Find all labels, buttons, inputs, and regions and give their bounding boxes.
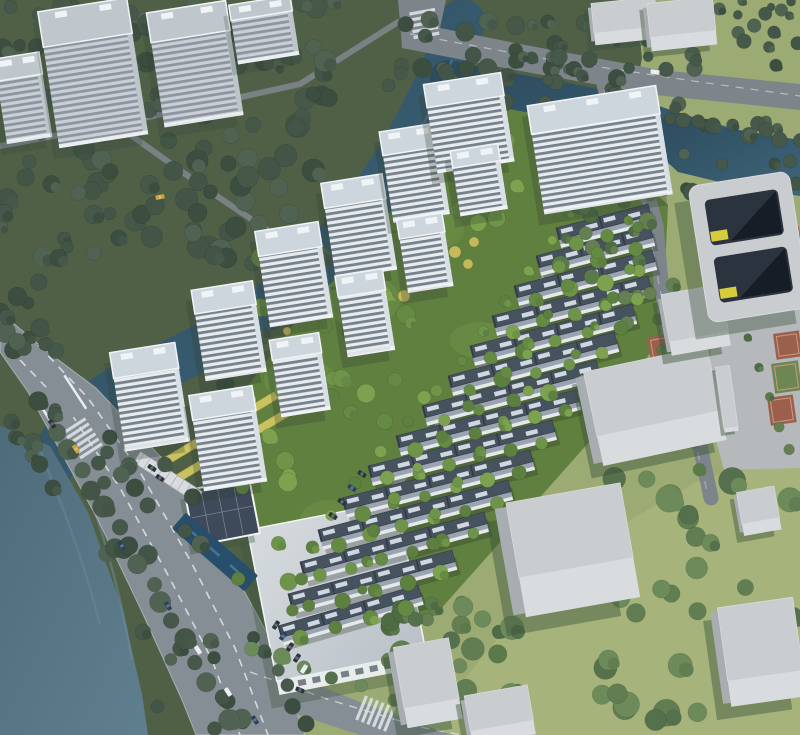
tree [187, 655, 202, 670]
tree [547, 20, 555, 28]
tree [102, 504, 115, 517]
tree [200, 542, 211, 553]
tree [504, 443, 518, 457]
tree [54, 413, 63, 422]
tree [331, 537, 347, 553]
tree [618, 291, 632, 305]
tree [607, 291, 619, 303]
tree [52, 486, 62, 496]
tree [712, 124, 722, 134]
tree [302, 1, 313, 12]
tree [784, 444, 795, 455]
tree [632, 222, 643, 233]
tree [320, 89, 338, 107]
tree [313, 568, 326, 581]
tree [100, 446, 113, 459]
tree [759, 7, 772, 20]
tree [665, 709, 681, 725]
tree [11, 420, 20, 429]
tree [431, 385, 443, 397]
tree [355, 506, 371, 522]
tree [443, 458, 456, 471]
tree [607, 684, 627, 704]
tree [480, 450, 487, 457]
tree [382, 79, 395, 92]
tree [286, 604, 298, 616]
tree [688, 703, 707, 722]
tree [564, 359, 576, 371]
tree [430, 602, 438, 610]
tree [75, 462, 91, 478]
tree [507, 16, 525, 34]
tree [17, 437, 25, 445]
tree [742, 0, 747, 5]
tree [142, 630, 151, 639]
tree [440, 571, 449, 580]
tree [6, 315, 15, 324]
tree [503, 420, 509, 426]
tree [196, 673, 215, 692]
tree [645, 709, 666, 730]
tree [487, 19, 498, 30]
tree [281, 679, 294, 692]
tree [140, 498, 156, 514]
tree [164, 161, 183, 180]
tree [629, 242, 643, 256]
tree [400, 72, 408, 80]
tree [398, 600, 414, 616]
tree [786, 0, 795, 6]
tree [231, 572, 245, 586]
tree [522, 349, 532, 359]
tree [286, 118, 305, 137]
tree [325, 672, 338, 685]
block-roof [393, 638, 459, 709]
tree [419, 491, 430, 502]
tree [480, 472, 495, 487]
tree [513, 399, 521, 407]
tree [737, 34, 752, 49]
block-roof [717, 597, 800, 681]
tree [400, 575, 416, 591]
tree [375, 445, 387, 457]
tree [226, 217, 247, 238]
tree [698, 120, 706, 128]
tree [643, 287, 656, 300]
tree [758, 366, 763, 371]
tree [298, 716, 315, 733]
tree [561, 279, 574, 292]
tree [516, 184, 524, 192]
tree [679, 505, 698, 524]
car-windshield [653, 70, 656, 74]
tree [453, 597, 473, 617]
tree [358, 585, 367, 594]
tree [244, 642, 258, 656]
tree [345, 563, 357, 575]
tree [465, 47, 481, 63]
tree [269, 178, 287, 196]
tree [184, 224, 201, 241]
tree [367, 560, 374, 567]
tree [1, 226, 9, 234]
tree [774, 162, 781, 169]
tree [532, 24, 538, 30]
tree [512, 330, 520, 338]
tree [350, 411, 358, 419]
tree [452, 477, 463, 488]
tree [278, 542, 287, 551]
tree [312, 546, 320, 554]
tree [280, 204, 300, 224]
tree [188, 203, 207, 222]
tree [631, 293, 644, 306]
tree [375, 552, 388, 565]
tree [264, 650, 272, 658]
tree [329, 395, 340, 406]
tree [295, 573, 307, 585]
tree [623, 63, 634, 74]
tree [459, 505, 471, 517]
tree [669, 102, 681, 114]
tree [367, 524, 380, 537]
tree [388, 492, 401, 505]
tree [732, 123, 739, 130]
tree [438, 64, 455, 81]
tree [504, 300, 511, 307]
tree [376, 413, 392, 429]
tree [774, 422, 784, 432]
tree [335, 593, 351, 609]
tree [679, 662, 694, 677]
tree [388, 373, 403, 388]
tree [31, 456, 48, 473]
tree [58, 256, 68, 266]
tree [424, 34, 432, 42]
tree [3, 211, 14, 222]
tree [141, 226, 163, 248]
tree [380, 471, 394, 485]
tree [647, 219, 657, 229]
tree [571, 349, 581, 359]
tree [406, 546, 418, 558]
tree [429, 17, 439, 27]
tree [395, 519, 408, 532]
tree [628, 219, 634, 225]
tree [432, 542, 440, 550]
tree [610, 246, 618, 254]
tree [417, 391, 430, 404]
context-tower [222, 0, 301, 75]
tree [31, 274, 48, 291]
tree [442, 539, 450, 547]
tree [591, 247, 603, 259]
tree [679, 148, 690, 159]
tree [601, 351, 608, 358]
tree [769, 396, 774, 401]
tree [528, 410, 542, 424]
tree [664, 113, 676, 125]
tree [468, 528, 479, 539]
tree [189, 173, 207, 191]
tree [737, 579, 753, 595]
tree [710, 541, 720, 551]
yellow-tree [449, 246, 461, 258]
tree [374, 589, 382, 597]
tree [281, 654, 291, 664]
tree [574, 313, 582, 321]
tree [469, 389, 476, 396]
tree [474, 611, 491, 628]
tree [275, 144, 297, 166]
tree [569, 236, 584, 251]
tree [523, 55, 530, 62]
tree [506, 371, 513, 378]
block-roof [736, 486, 779, 524]
tree [421, 65, 432, 76]
tree [581, 52, 597, 68]
tree [624, 264, 635, 275]
tree [523, 386, 534, 397]
tree [126, 479, 144, 497]
tree [276, 452, 295, 471]
tree [37, 399, 48, 410]
tree [9, 333, 26, 350]
tree [408, 442, 424, 458]
tree [322, 71, 332, 81]
tree [280, 573, 298, 591]
tree [672, 283, 681, 292]
tree [528, 270, 534, 276]
tree [411, 321, 418, 328]
tree [543, 310, 553, 320]
tree [8, 287, 27, 306]
tree [300, 636, 309, 645]
tree [357, 384, 376, 403]
tree [398, 16, 414, 32]
tree [553, 260, 566, 273]
tree [462, 400, 474, 412]
tree [147, 577, 162, 592]
tree [747, 19, 761, 33]
tree [614, 321, 628, 335]
tree [418, 472, 425, 479]
tree [4, 0, 17, 13]
tree [246, 117, 261, 132]
tree [14, 39, 26, 51]
tree [178, 524, 193, 539]
scene-canvas [0, 0, 800, 735]
tree [213, 253, 224, 264]
massing-block [484, 483, 643, 636]
tree [473, 404, 484, 415]
tree [165, 653, 177, 665]
tree [22, 155, 36, 169]
tree [512, 465, 527, 480]
tree [370, 616, 379, 625]
tree [531, 56, 538, 63]
tree [689, 602, 707, 620]
tree [535, 298, 543, 306]
tree [17, 169, 34, 186]
tree [597, 258, 607, 268]
tree [228, 717, 241, 730]
tree [104, 207, 117, 220]
tree [565, 409, 573, 417]
block-roof [647, 0, 716, 37]
tree [536, 437, 548, 449]
tree [582, 74, 589, 81]
tree [238, 149, 258, 169]
tree [638, 471, 655, 488]
residential-tower [520, 86, 674, 226]
tree [690, 55, 702, 67]
tree [719, 7, 727, 15]
tree [48, 424, 66, 442]
tree [86, 246, 101, 261]
yellow-tree [463, 259, 473, 269]
tree [329, 621, 342, 634]
sports-court [771, 360, 800, 393]
tree [113, 466, 129, 482]
tree [530, 367, 541, 378]
tree [775, 64, 782, 71]
tree [38, 337, 52, 351]
tree [716, 158, 728, 170]
tree [333, 1, 341, 9]
tree [192, 159, 206, 173]
tree [652, 580, 670, 598]
tree [456, 22, 475, 41]
tree [302, 599, 314, 611]
tree [759, 122, 774, 137]
tree [771, 132, 787, 148]
tree [733, 10, 742, 19]
tree [413, 463, 422, 472]
tree [457, 356, 467, 366]
tree [607, 657, 619, 669]
tree [789, 15, 794, 20]
tree [699, 468, 707, 476]
tree [306, 87, 321, 102]
tree [548, 236, 557, 245]
massing-block [702, 597, 800, 720]
tree [341, 376, 352, 387]
sports-court [773, 330, 800, 359]
tree [594, 325, 599, 330]
tree [507, 73, 515, 81]
tree [626, 603, 645, 622]
yellow-tree [469, 237, 479, 247]
tree [549, 335, 562, 348]
tree [686, 557, 708, 579]
tree [490, 356, 498, 364]
tree [220, 156, 236, 172]
tree [237, 166, 259, 188]
tree [51, 182, 61, 192]
tree [403, 416, 414, 427]
tree [151, 700, 164, 713]
tree [208, 651, 221, 664]
tree [461, 637, 484, 660]
tree [429, 508, 440, 519]
tree [278, 473, 297, 492]
tree [355, 680, 367, 692]
tree [312, 167, 326, 181]
tree [550, 48, 567, 65]
tree [272, 664, 284, 676]
tree [528, 342, 535, 349]
tree [210, 639, 219, 648]
tree [163, 613, 179, 629]
tree [483, 330, 489, 336]
tree [747, 337, 752, 342]
aerial-render [0, 0, 800, 735]
tree [659, 62, 674, 77]
tree [128, 554, 148, 574]
tree [112, 519, 128, 535]
tree [597, 275, 614, 292]
tree [284, 698, 300, 714]
tree [269, 434, 278, 443]
tree [118, 236, 128, 246]
tree [39, 326, 50, 337]
tree [616, 76, 627, 87]
tree [441, 435, 448, 442]
tree [71, 186, 86, 201]
tree [750, 133, 758, 141]
tree [601, 229, 614, 242]
tree [783, 155, 796, 168]
tree [542, 75, 553, 86]
tree [93, 212, 104, 223]
residential-tower [443, 144, 509, 228]
tree [149, 182, 160, 193]
tree [222, 127, 239, 144]
tree [773, 31, 781, 39]
tree [164, 463, 173, 472]
tree [460, 622, 471, 633]
tree [102, 163, 118, 179]
tree [469, 427, 482, 440]
massing-block [639, 0, 718, 58]
tree [324, 58, 337, 71]
tree [548, 391, 558, 401]
tree [488, 645, 507, 664]
tree [768, 46, 775, 53]
tree [439, 414, 451, 426]
tree [676, 113, 691, 128]
